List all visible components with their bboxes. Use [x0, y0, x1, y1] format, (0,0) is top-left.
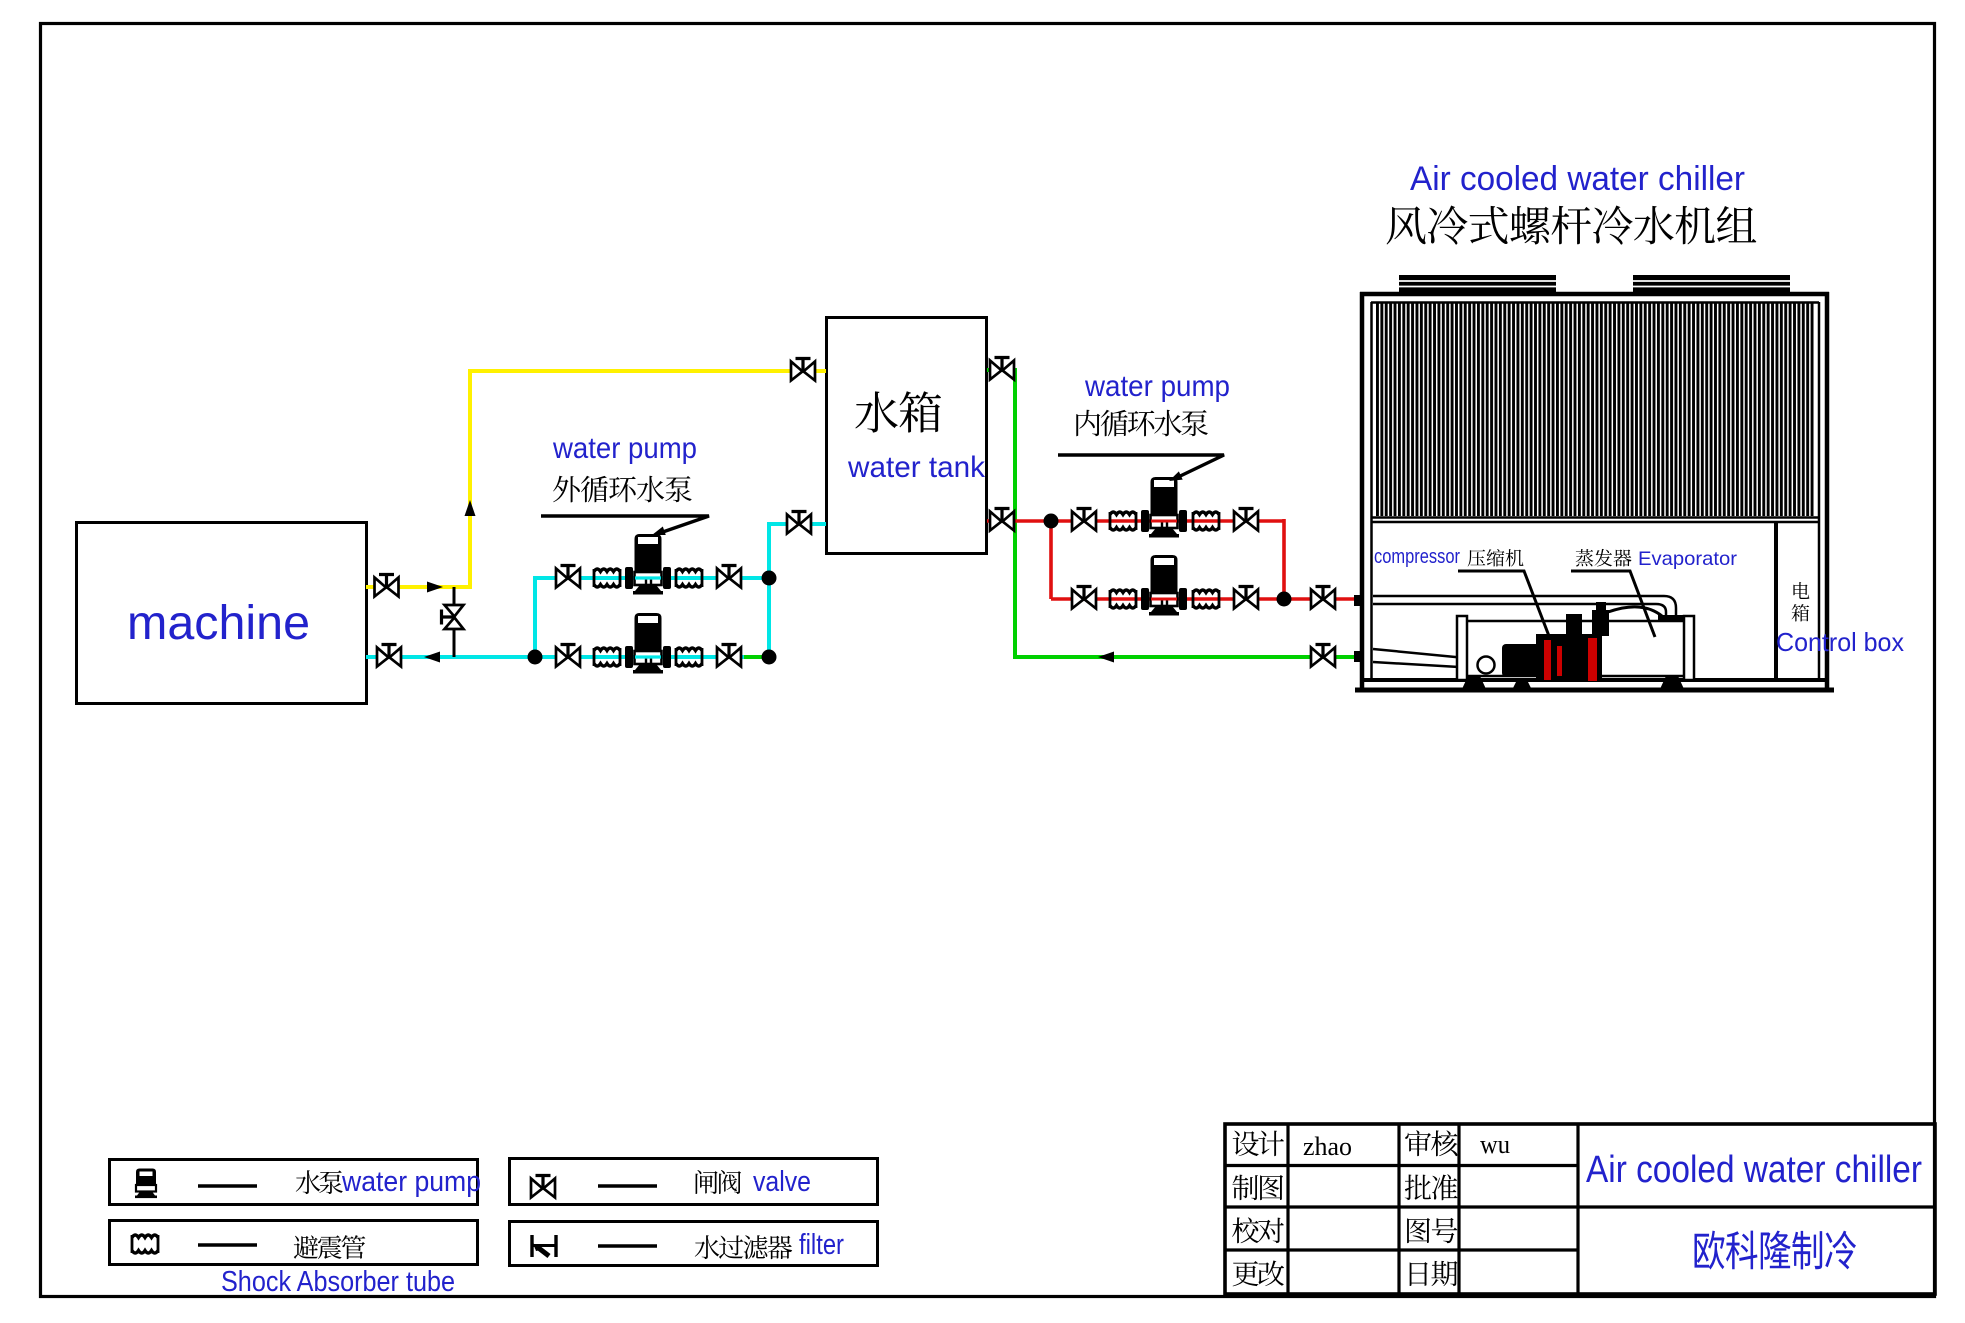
svg-text:Air cooled water chiller: Air cooled water chiller [1586, 1149, 1922, 1191]
svg-text:machine: machine [127, 597, 310, 650]
svg-text:compressor: compressor [1374, 546, 1460, 568]
svg-text:valve: valve [753, 1166, 811, 1198]
svg-text:water pump: water pump [552, 432, 697, 465]
svg-text:Air cooled water chiller: Air cooled water chiller [1410, 160, 1745, 198]
svg-text:wu: wu [1480, 1130, 1510, 1159]
svg-text:Shock Absorber tube: Shock Absorber tube [221, 1266, 455, 1298]
svg-text:Control box: Control box [1776, 627, 1904, 657]
svg-text:water tank: water tank [847, 451, 986, 484]
svg-text:Evaporator: Evaporator [1638, 548, 1738, 570]
svg-text:filter: filter [799, 1229, 844, 1261]
svg-text:zhao: zhao [1303, 1132, 1352, 1161]
svg-text:water pump: water pump [341, 1166, 481, 1198]
svg-text:water pump: water pump [1084, 370, 1230, 403]
